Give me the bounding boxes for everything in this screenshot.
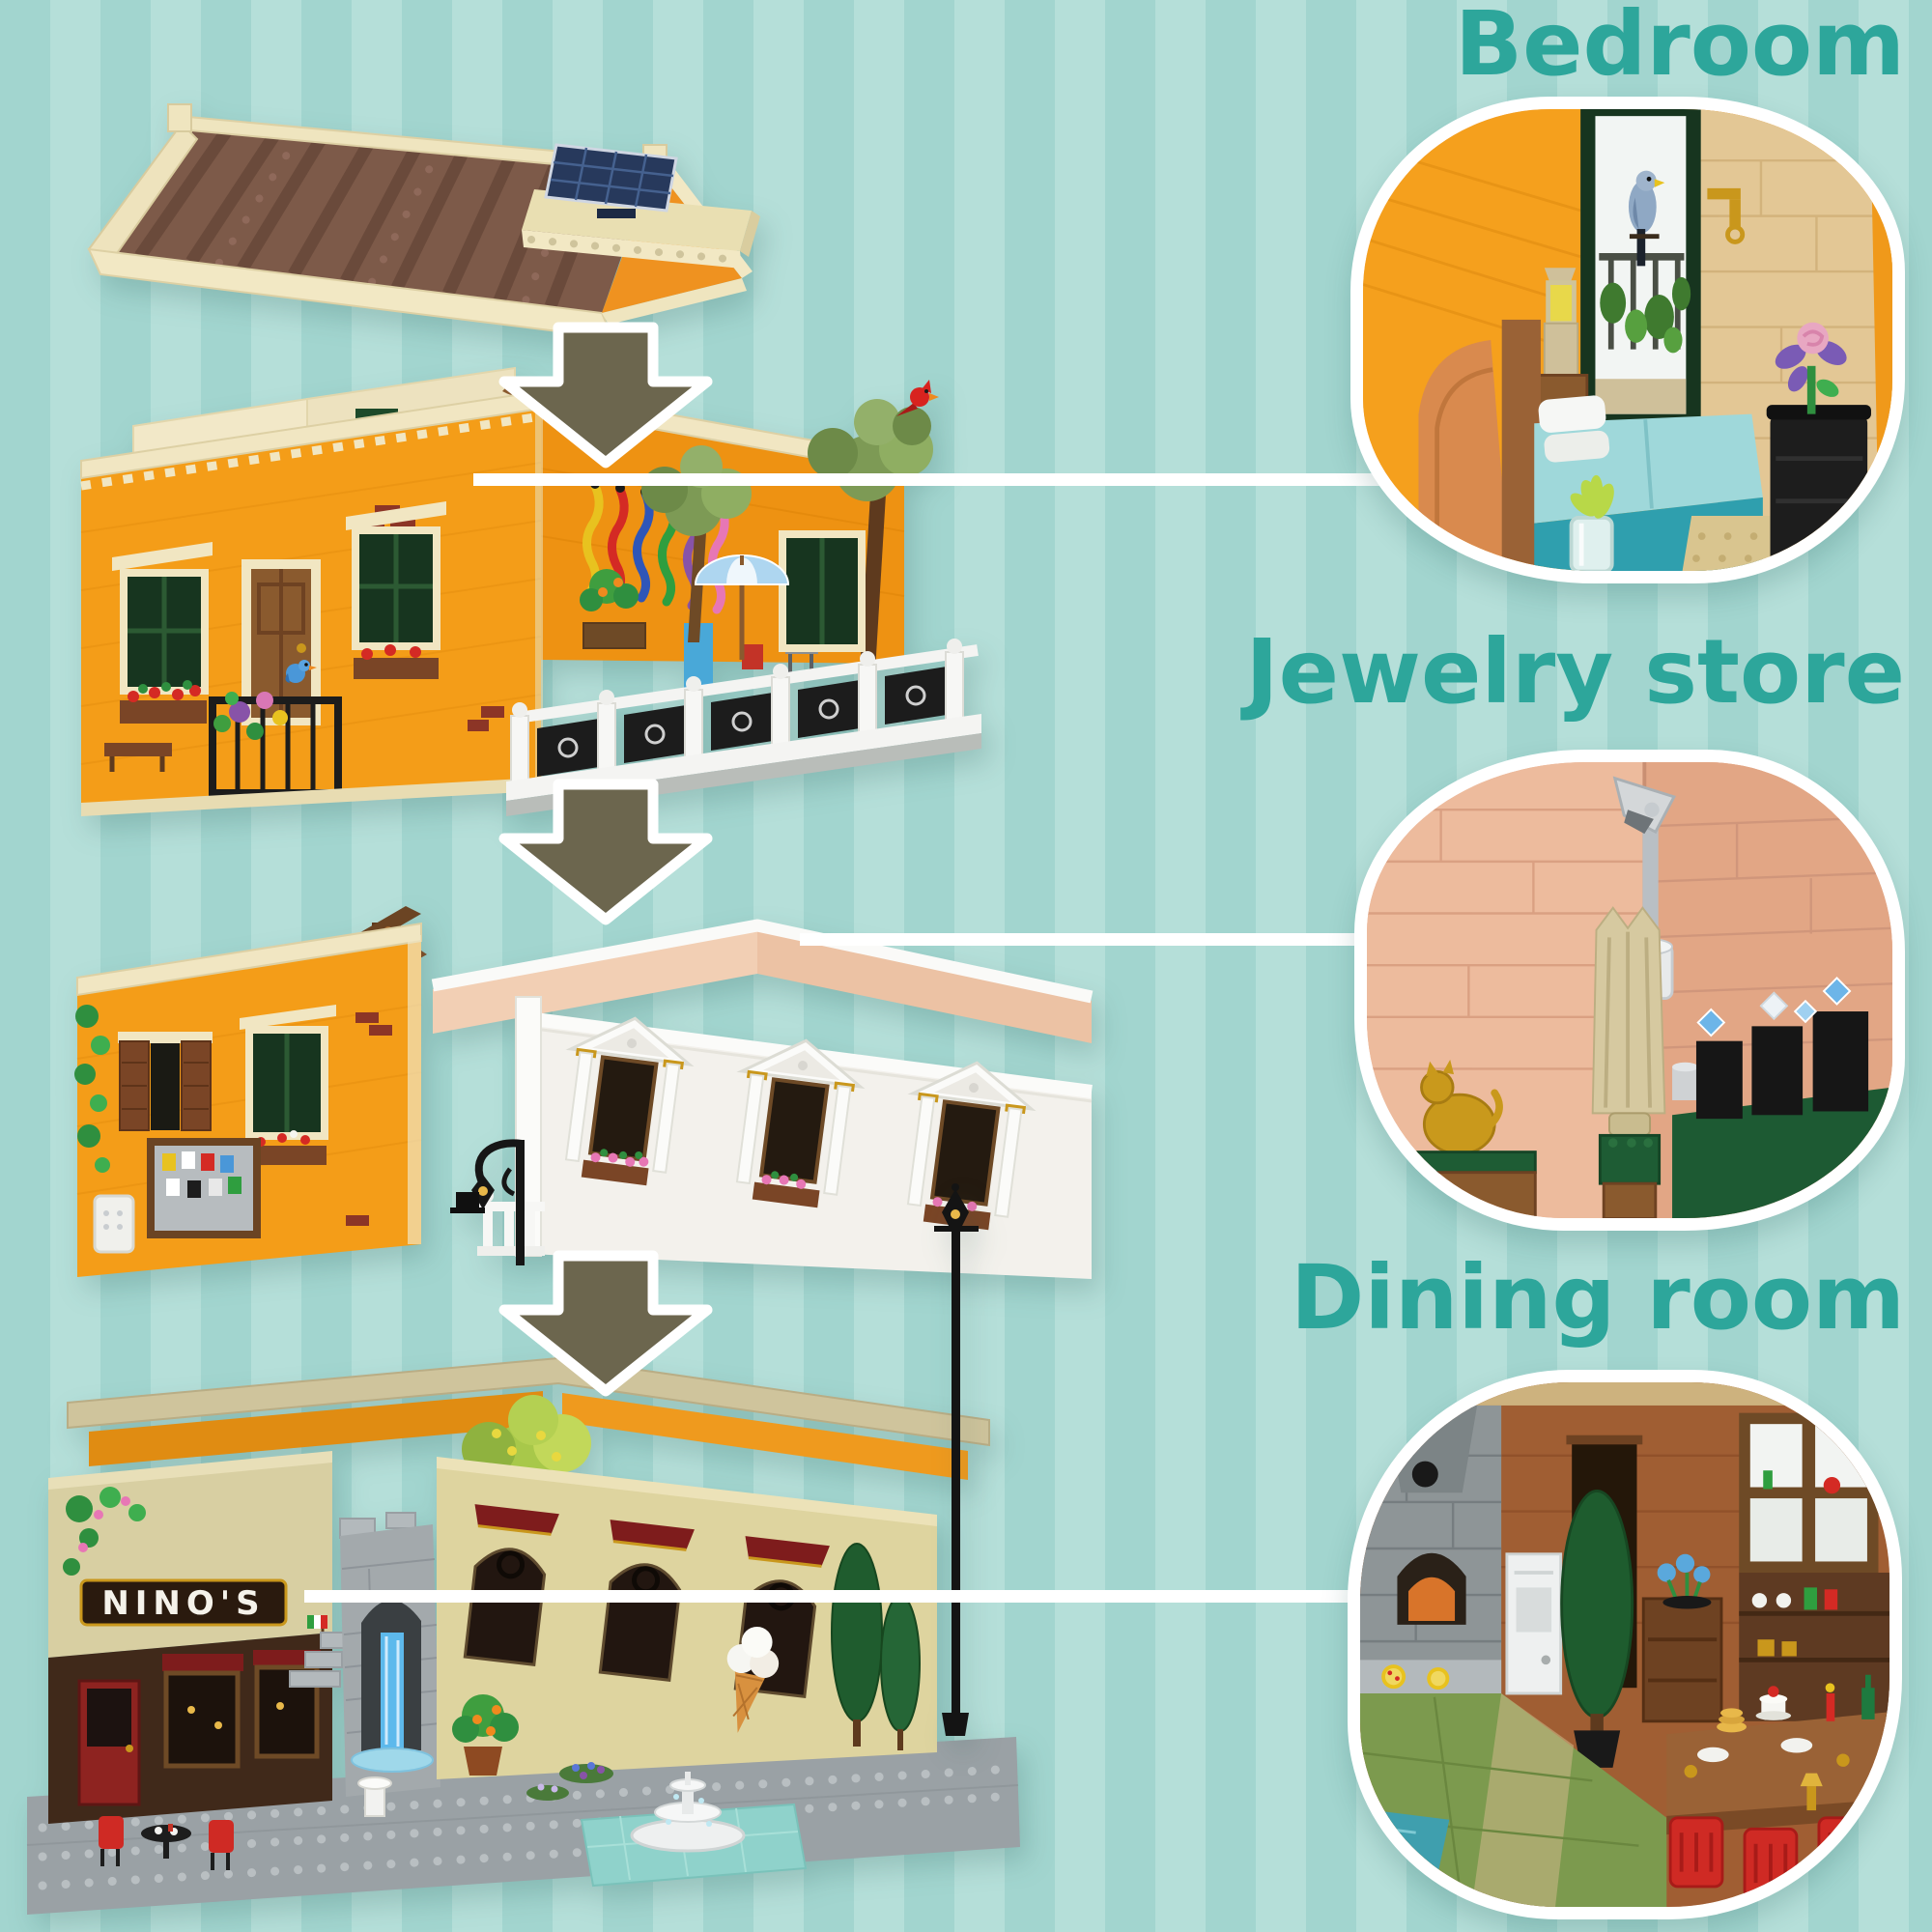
candle bbox=[1826, 1683, 1835, 1720]
restaurant-sign-text: NINO'S bbox=[101, 1584, 265, 1623]
callout-title-dining-room: Dining room bbox=[1291, 1254, 1905, 1343]
window-right-wall bbox=[779, 530, 866, 652]
street-lamp-tall bbox=[923, 1183, 1000, 1753]
callout-image-dining-room bbox=[1348, 1370, 1902, 1919]
down-arrow-icon bbox=[495, 779, 717, 925]
left-orange-building bbox=[74, 923, 421, 1277]
callout-image-jewelry-store bbox=[1354, 750, 1905, 1231]
gelateria-building bbox=[437, 1457, 937, 1801]
down-arrow-icon bbox=[495, 1250, 717, 1397]
bench bbox=[104, 743, 172, 756]
connector-line-bedroom bbox=[473, 473, 1381, 486]
balcony-window bbox=[1580, 109, 1701, 423]
callout-image-bedroom bbox=[1350, 97, 1905, 583]
stage-ground-floor: NINO'S bbox=[21, 1343, 1031, 1924]
kitchen-appliance bbox=[1507, 1554, 1561, 1693]
tomato bbox=[1824, 1477, 1840, 1493]
restaurant-building: NINO'S bbox=[48, 1451, 332, 1824]
restaurant-door bbox=[79, 1681, 139, 1804]
intercom-unit bbox=[95, 1196, 133, 1252]
shuttered-window bbox=[118, 1032, 213, 1130]
callout-title-bedroom: Bedroom bbox=[1455, 0, 1905, 89]
connector-line-dining bbox=[304, 1590, 1367, 1603]
callout-title-jewelry-store: Jewelry store bbox=[1245, 628, 1905, 717]
door-knob bbox=[297, 643, 306, 653]
roof-corner-post bbox=[168, 104, 191, 131]
pancake-stack bbox=[1717, 1708, 1747, 1732]
window-flower-box bbox=[120, 700, 207, 724]
stage-roof bbox=[75, 83, 781, 354]
product-exploded-view-page: NINO'S bbox=[0, 0, 1932, 1932]
pizza-oven bbox=[1360, 1406, 1501, 1697]
red-chairs bbox=[1670, 1818, 1871, 1898]
carved-vase bbox=[1593, 908, 1665, 1218]
solar-panel-mount bbox=[597, 209, 636, 218]
notice-board bbox=[147, 1138, 261, 1238]
down-arrow-icon bbox=[495, 322, 717, 469]
connector-line-jewelry bbox=[800, 933, 1379, 946]
dining-window bbox=[1739, 1413, 1878, 1573]
